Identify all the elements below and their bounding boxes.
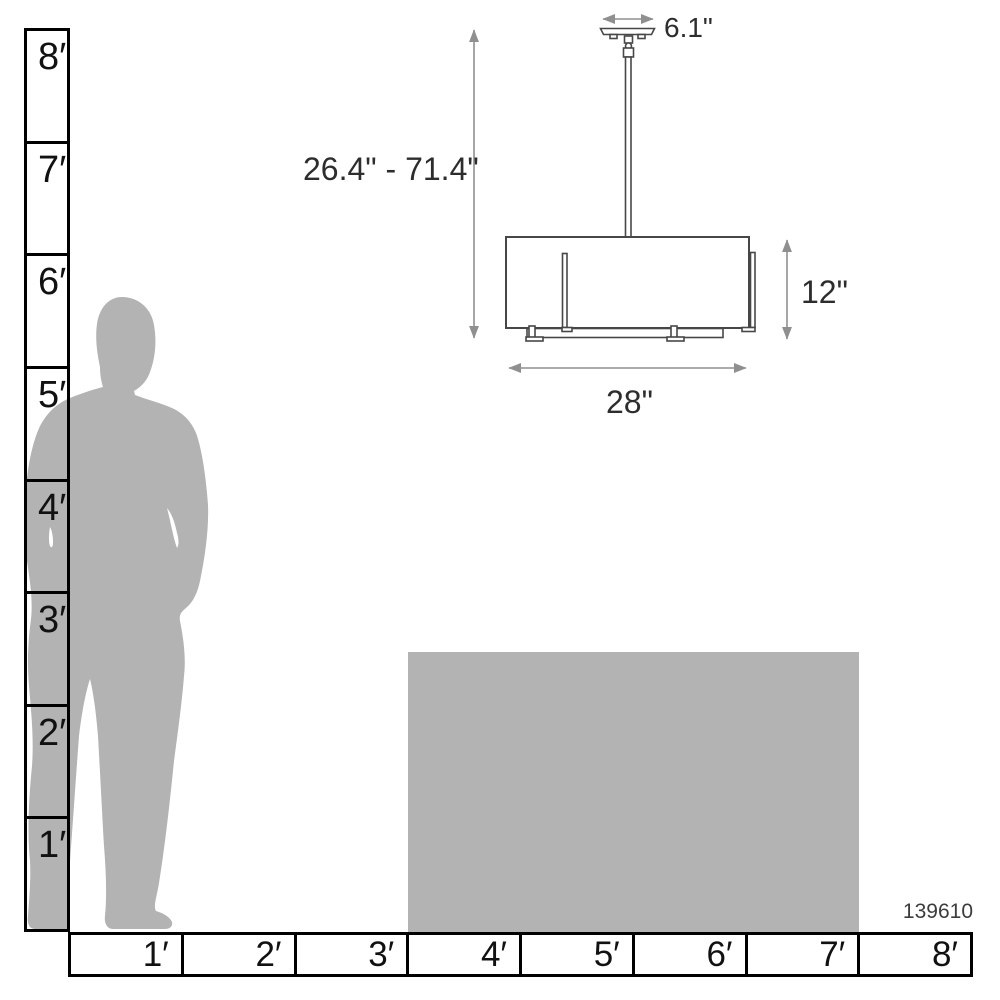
height-ruler-cell-1ft: 1′ bbox=[27, 819, 67, 929]
shade-width-label: 28" bbox=[606, 386, 653, 418]
swivel-collar bbox=[624, 48, 634, 57]
canopy-screw-left bbox=[610, 35, 617, 39]
height-ruler-cell-2ft: 2′ bbox=[27, 707, 67, 820]
canopy-screw-right bbox=[638, 35, 645, 39]
width-ruler-cell-5ft: 5′ bbox=[522, 935, 635, 974]
height-ruler-cell-5ft: 5′ bbox=[27, 369, 67, 482]
strap-right bbox=[751, 253, 756, 328]
diagram-canvas bbox=[0, 0, 1000, 1000]
width-ruler-cell-1ft: 1′ bbox=[71, 935, 184, 974]
outer-shade bbox=[506, 237, 749, 328]
height-ruler-cell-4ft: 4′ bbox=[27, 482, 67, 595]
table-block bbox=[408, 652, 859, 932]
height-ruler-cell-3ft: 3′ bbox=[27, 594, 67, 707]
width-ruler-cell-2ft: 2′ bbox=[184, 935, 297, 974]
width-ruler-cell-8ft: 8′ bbox=[860, 935, 970, 974]
height-ruler: 8′ 7′ 6′ 5′ 4′ 3′ 2′ 1′ bbox=[24, 28, 70, 932]
canopy-width-label: 6.1" bbox=[664, 14, 713, 42]
width-ruler-cell-3ft: 3′ bbox=[297, 935, 410, 974]
product-number: 139610 bbox=[903, 901, 973, 922]
shade-height-label: 12" bbox=[801, 276, 848, 308]
height-ruler-cell-6ft: 6′ bbox=[27, 256, 67, 369]
height-ruler-cell-8ft: 8′ bbox=[27, 31, 67, 144]
stem-rod bbox=[626, 57, 632, 238]
strap-left bbox=[563, 254, 568, 328]
height-ruler-cell-7ft: 7′ bbox=[27, 144, 67, 257]
swivel-top bbox=[625, 36, 633, 43]
hanging-height-label: 26.4" - 71.4" bbox=[303, 153, 479, 185]
strap-right-foot bbox=[742, 328, 755, 332]
inner-shade-band bbox=[527, 329, 723, 338]
pendant-fixture-drawing bbox=[506, 29, 755, 342]
inner-foot-left bbox=[526, 337, 543, 341]
width-ruler-cell-4ft: 4′ bbox=[409, 935, 522, 974]
width-ruler-cell-6ft: 6′ bbox=[635, 935, 748, 974]
inner-foot-mid bbox=[667, 337, 684, 341]
width-ruler: 1′ 2′ 3′ 4′ 5′ 6′ 7′ 8′ bbox=[68, 932, 973, 977]
width-ruler-cell-7ft: 7′ bbox=[748, 935, 861, 974]
strap-left-foot bbox=[562, 328, 572, 332]
canopy-plate bbox=[601, 29, 655, 35]
